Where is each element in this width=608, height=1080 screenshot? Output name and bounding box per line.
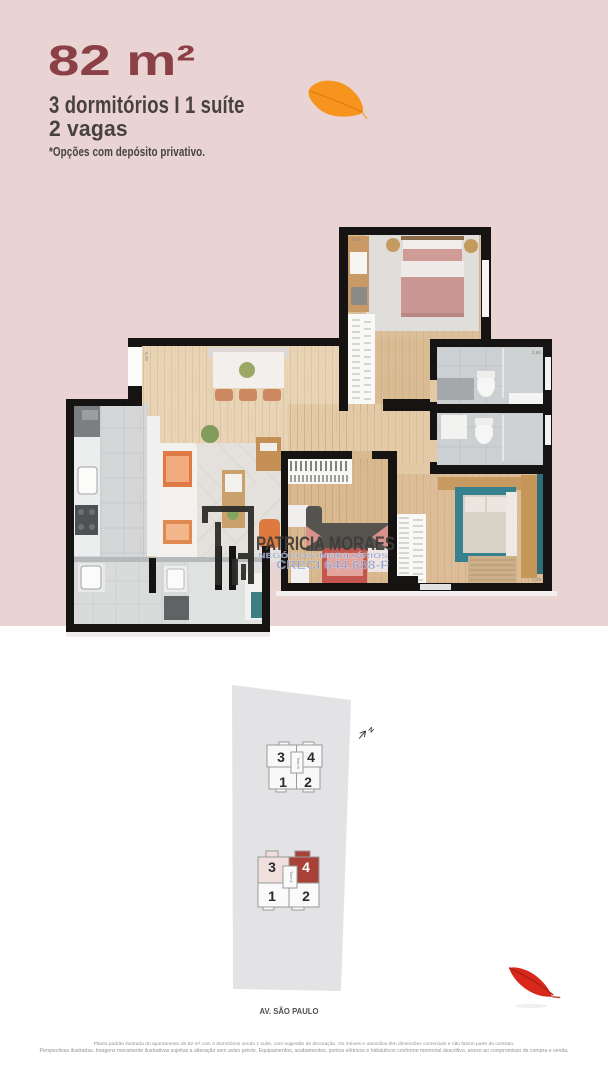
svg-text:4: 4 xyxy=(307,749,315,765)
svg-text:5,06: 5,06 xyxy=(352,237,361,242)
svg-text:1: 1 xyxy=(279,774,287,790)
svg-text:Torre A: Torre A xyxy=(289,871,293,883)
svg-text:2: 2 xyxy=(304,774,312,790)
svg-text:Planta padrão ilustrada do apa: Planta padrão ilustrada do apartamento d… xyxy=(94,1041,515,1047)
svg-text:N: N xyxy=(367,726,375,735)
svg-text:Perspectivas ilustradas. Image: Perspectivas ilustradas. Imagens meramen… xyxy=(39,1048,568,1054)
svg-text:2,49: 2,49 xyxy=(532,577,541,582)
svg-text:2: 2 xyxy=(302,888,310,904)
svg-text:4,78: 4,78 xyxy=(144,352,149,361)
svg-text:CRECI 644.688-F: CRECI 644.688-F xyxy=(276,560,389,572)
svg-text:NEGÓCIOS IMOBILIÁRIOS: NEGÓCIOS IMOBILIÁRIOS xyxy=(258,551,388,560)
svg-text:1: 1 xyxy=(268,888,276,904)
svg-text:PATRICIA MORAES: PATRICIA MORAES xyxy=(256,533,395,555)
svg-text:4: 4 xyxy=(302,859,310,875)
svg-text:3: 3 xyxy=(268,859,276,875)
svg-text:Torre B: Torre B xyxy=(296,757,300,769)
svg-text:3: 3 xyxy=(277,749,285,765)
svg-text:AV. SÃO PAULO: AV. SÃO PAULO xyxy=(260,1006,319,1016)
svg-text:2,88: 2,88 xyxy=(532,350,541,355)
